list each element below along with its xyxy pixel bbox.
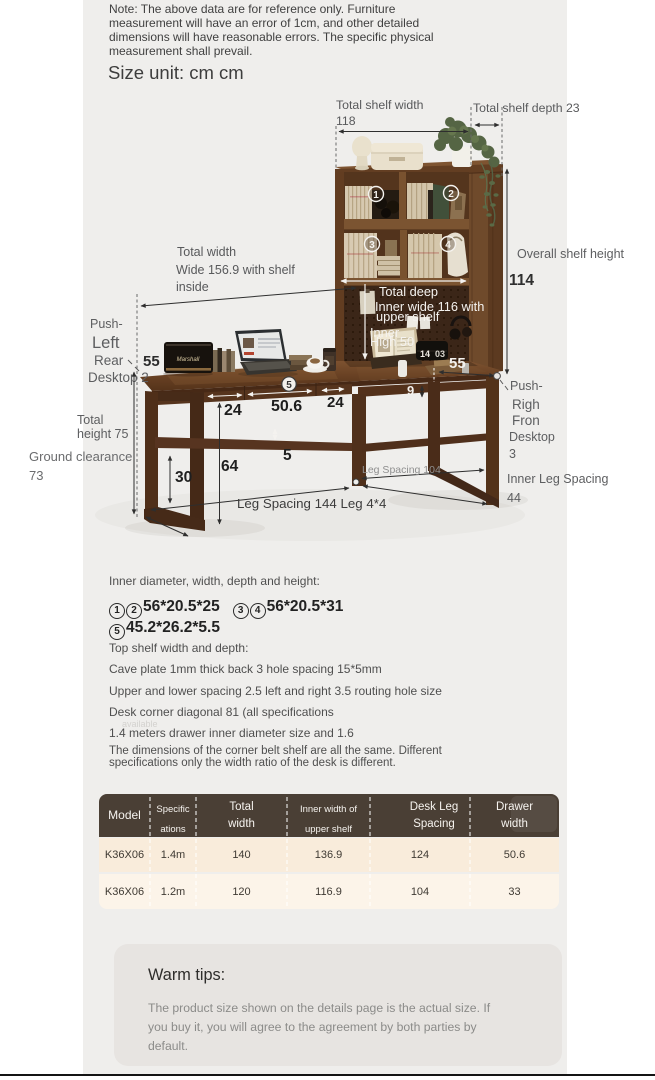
svg-text:30: 30: [175, 469, 192, 486]
svg-text:2: 2: [448, 189, 454, 200]
svg-text:9: 9: [407, 383, 414, 398]
svg-text:Leg Spacing 104: Leg Spacing 104: [362, 464, 441, 476]
svg-text:Total width: Total width: [177, 245, 236, 259]
svg-text:44: 44: [507, 491, 521, 505]
svg-text:5: 5: [286, 380, 292, 391]
svg-text:50.6: 50.6: [271, 398, 302, 415]
svg-text:3: 3: [509, 447, 516, 461]
svg-text:55: 55: [449, 355, 466, 372]
svg-text:55: 55: [143, 353, 160, 370]
svg-text:3: 3: [369, 240, 375, 251]
svg-text:Total: Total: [77, 413, 103, 427]
svg-text:Desktop 2: Desktop 2: [88, 370, 149, 385]
svg-text:Total deep: Total deep: [379, 284, 438, 299]
svg-text:height 75: height 75: [77, 427, 128, 441]
svg-text:upper shelf: upper shelf: [376, 309, 440, 324]
svg-text:Marshall: Marshall: [177, 357, 200, 363]
svg-text:118: 118: [336, 114, 356, 128]
svg-text:Fron: Fron: [512, 413, 540, 428]
svg-text:03: 03: [435, 349, 445, 359]
svg-text:5: 5: [283, 447, 292, 464]
svg-text:Ground clearance: Ground clearance: [29, 449, 132, 464]
svg-text:Total shelf width: Total shelf width: [336, 98, 424, 112]
svg-text:Rear: Rear: [94, 353, 124, 368]
svg-text:1: 1: [373, 190, 379, 201]
svg-text:Desktop: Desktop: [509, 430, 555, 444]
svg-text:24: 24: [327, 394, 344, 411]
svg-text:Leg Spacing 144 Leg 4*4: Leg Spacing 144 Leg 4*4: [237, 496, 386, 511]
svg-text:73: 73: [29, 468, 43, 483]
svg-text:Inner Leg Spacing: Inner Leg Spacing: [507, 472, 609, 486]
svg-text:64: 64: [221, 458, 239, 475]
svg-text:114: 114: [509, 272, 534, 289]
svg-text:Wide 156.9 with shelf: Wide 156.9 with shelf: [176, 263, 295, 277]
svg-text:inside: inside: [176, 280, 209, 294]
svg-text:14: 14: [420, 349, 430, 359]
svg-text:Push-: Push-: [90, 317, 123, 331]
svg-text:Overall shelf height: Overall shelf height: [517, 247, 625, 261]
svg-text:Left: Left: [92, 334, 120, 352]
svg-text:High 50: High 50: [370, 334, 414, 349]
svg-text:Push-: Push-: [510, 379, 543, 393]
svg-text:24: 24: [224, 402, 242, 419]
svg-text:Righ: Righ: [512, 397, 540, 412]
svg-text:Total shelf depth 23: Total shelf depth 23: [473, 101, 580, 115]
svg-text:4: 4: [445, 240, 451, 251]
